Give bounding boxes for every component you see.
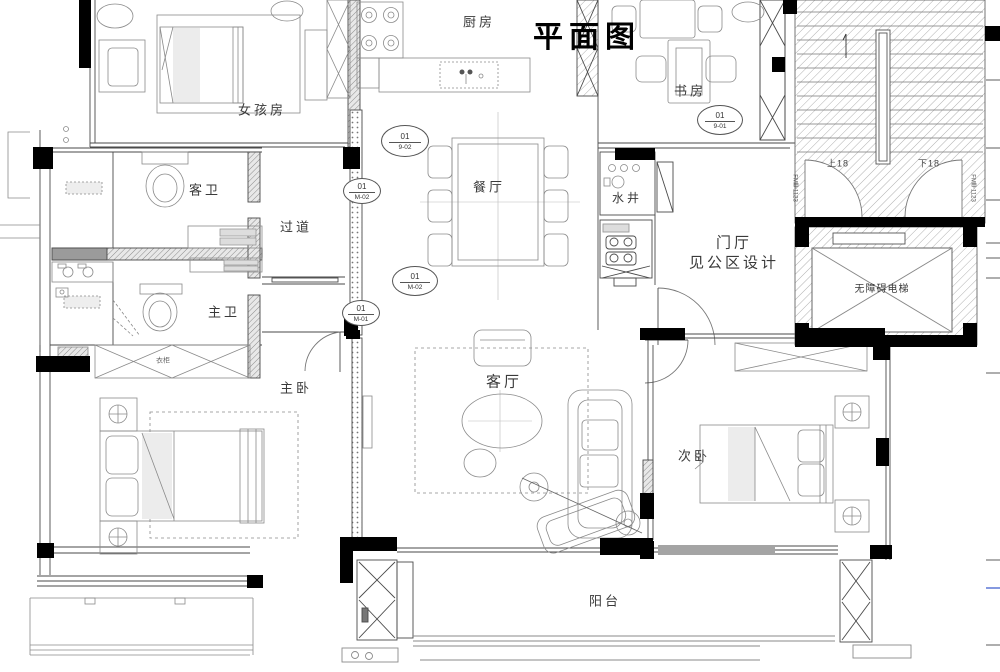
elevation-marker: 01 M-02 xyxy=(392,266,438,296)
floorplan-page: 平面图 女孩房 厨房 书房 客卫 过道 餐厅 水井 门厅 见公区设计 无障碍电梯… xyxy=(0,0,1000,672)
stairwell xyxy=(795,0,985,223)
wardrobe-label: 衣柜 xyxy=(156,358,170,365)
marker-number: 01 xyxy=(349,182,374,193)
room-label-girl-room: 女孩房 xyxy=(238,104,286,117)
stair-right-door-code: FM甲1123 xyxy=(969,174,978,202)
room-label-elevator: 无障碍电梯 xyxy=(855,285,910,295)
room-label-kitchen: 厨房 xyxy=(463,16,495,29)
floorplan-drawing xyxy=(0,0,1000,672)
room-label-foyer: 门厅 xyxy=(716,236,752,251)
elevation-marker: 01 M-02 xyxy=(343,178,381,204)
room-label-foyer-note: 见公区设计 xyxy=(689,256,779,271)
marker-number: 01 xyxy=(705,111,736,122)
marker-ref: M-02 xyxy=(355,193,370,201)
room-label-study: 书房 xyxy=(674,85,706,98)
room-label-second-bedroom: 次卧 xyxy=(678,450,710,463)
stair-down-label: 下18 xyxy=(918,160,940,169)
room-label-dining: 餐厅 xyxy=(473,181,505,194)
room-label-master-bath: 主卫 xyxy=(208,306,240,319)
room-label-guest-bath: 客卫 xyxy=(189,184,221,197)
room-label-water-shaft: 水井 xyxy=(612,192,642,204)
elevation-marker: 01 9-02 xyxy=(381,125,429,157)
marker-ref: M-01 xyxy=(354,315,369,323)
wall-lines xyxy=(0,0,911,662)
room-label-living-room: 客厅 xyxy=(486,375,522,390)
marker-ref: M-02 xyxy=(408,283,423,291)
page-edge-ticks xyxy=(986,80,1000,645)
stair-up-label: 上18 xyxy=(827,160,849,169)
room-label-master-bedroom: 主卧 xyxy=(280,382,312,395)
marker-ref: 9-01 xyxy=(713,122,726,130)
marker-number: 01 xyxy=(348,304,373,315)
stair-left-door-code: FM甲1123 xyxy=(791,174,800,202)
furniture xyxy=(52,0,869,556)
elevation-marker: 01 M-01 xyxy=(342,300,380,326)
marker-number: 01 xyxy=(400,272,431,283)
room-label-hallway: 过道 xyxy=(280,221,312,234)
marker-ref: 9-02 xyxy=(398,143,411,151)
room-label-balcony: 阳台 xyxy=(589,595,621,608)
marker-number: 01 xyxy=(389,132,421,143)
page-title: 平面图 xyxy=(533,23,641,53)
elevation-marker: 01 9-01 xyxy=(697,105,743,135)
